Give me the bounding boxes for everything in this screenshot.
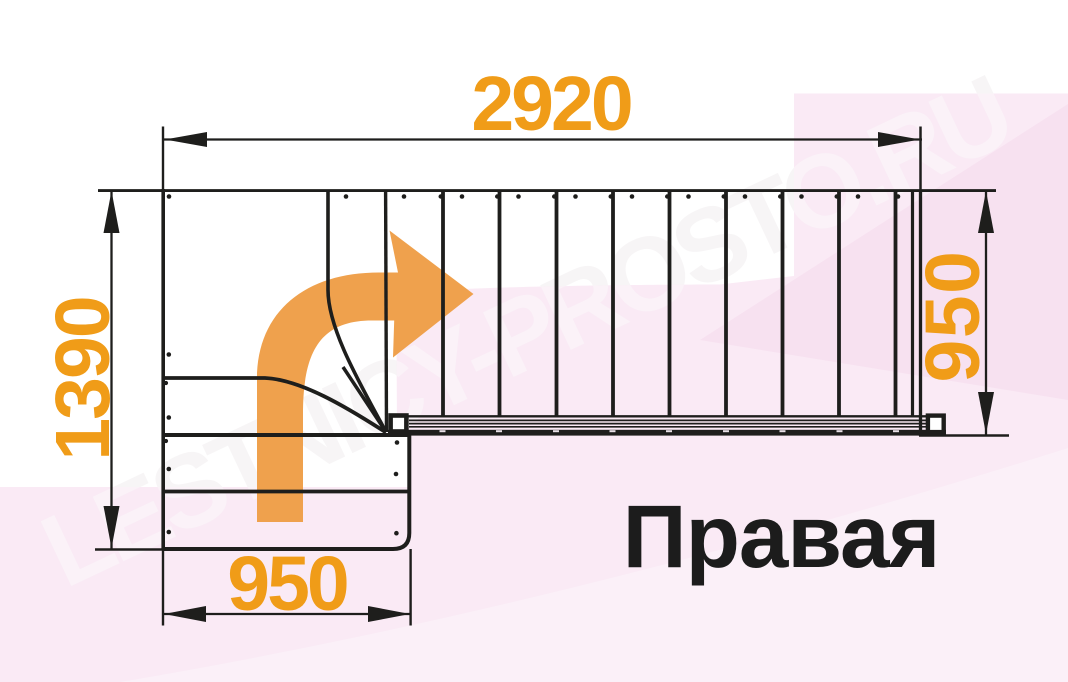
svg-text:950: 950	[227, 541, 347, 627]
svg-text:Правая: Правая	[623, 486, 940, 586]
svg-text:1390: 1390	[40, 297, 126, 460]
svg-text:2920: 2920	[471, 61, 630, 147]
svg-text:950: 950	[910, 250, 996, 383]
